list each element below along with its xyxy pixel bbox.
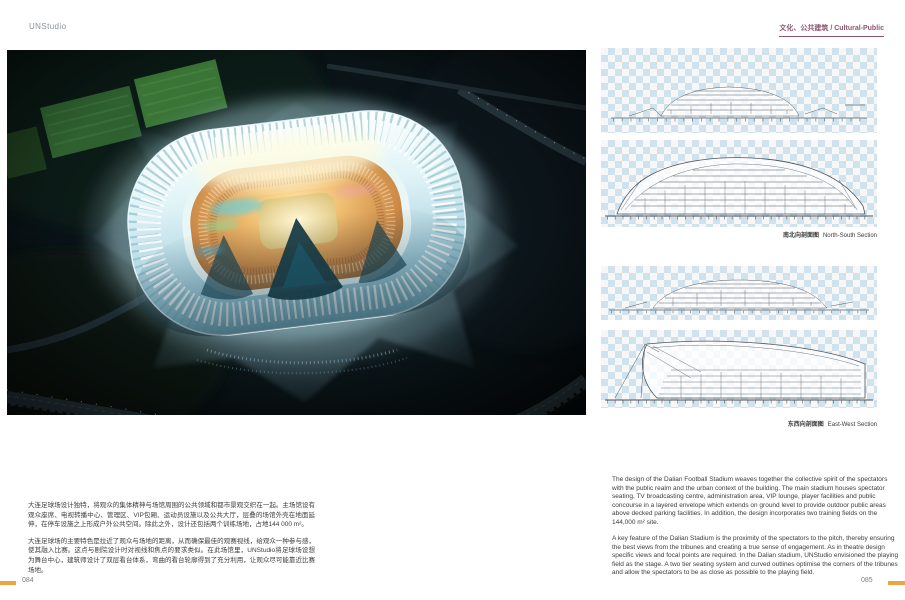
stadium-photo-graphic bbox=[7, 50, 586, 415]
en-paragraph-2: A key feature of the Dalian Stadium is t… bbox=[612, 535, 899, 578]
chapter-header: 文化、公共建筑 / Cultural-Public bbox=[779, 23, 884, 37]
caption-cn: 东西向剖面图 bbox=[788, 422, 824, 428]
caption-en: East-West Section bbox=[828, 422, 877, 428]
caption-east-west-section: 东西向剖面图East-West Section bbox=[601, 419, 877, 428]
studio-name: UNStudio bbox=[29, 22, 66, 31]
caption-en: North-South Section bbox=[823, 233, 877, 239]
caption-north-south-section: 南北向剖面图North-South Section bbox=[601, 230, 877, 239]
book-spread: UNStudio 文化、公共建筑 / Cultural-Public bbox=[0, 0, 905, 600]
page-accent-bar-left bbox=[0, 581, 16, 585]
section-drawing-ns-elevation bbox=[601, 48, 877, 133]
cn-paragraph-1: 大连足球场设计独特，将观众的集体精神与场馆周围的公共领域和都市景观交织在一起。主… bbox=[28, 501, 315, 530]
stadium-night-rendering bbox=[7, 50, 586, 415]
cn-paragraph-2: 大连足球场的主要特色是拉近了观众与场地的距离，从而确保最佳的观赛视线，给观众一种… bbox=[28, 537, 315, 575]
english-description: The design of the Dalian Football Stadiu… bbox=[612, 476, 899, 586]
page-accent-bar-right bbox=[888, 581, 905, 585]
en-paragraph-1: The design of the Dalian Football Stadiu… bbox=[612, 476, 899, 527]
chinese-description: 大连足球场设计独特，将观众的集体精神与场馆周围的公共领域和都市景观交织在一起。主… bbox=[28, 501, 315, 582]
page-number-right: 085 bbox=[861, 577, 873, 584]
caption-cn: 南北向剖面图 bbox=[783, 233, 819, 239]
page-number-left: 084 bbox=[22, 577, 34, 584]
section-drawing-ns-section bbox=[601, 140, 877, 227]
section-drawing-ew-elevation bbox=[601, 266, 877, 320]
dimension-label-mark bbox=[845, 104, 865, 106]
section-drawing-ew-section bbox=[601, 330, 877, 408]
